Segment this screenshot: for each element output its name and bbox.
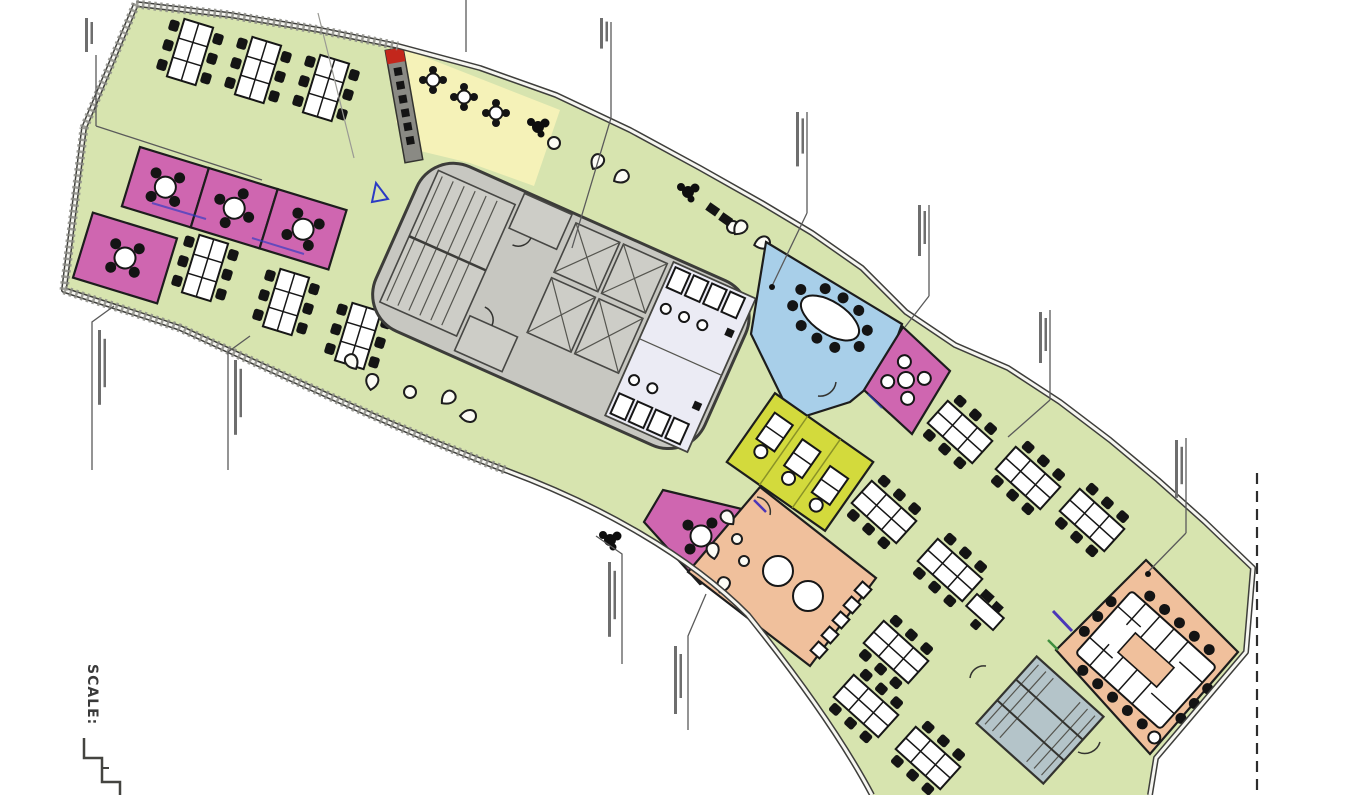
side-table [404,386,416,398]
callout-label [98,330,106,405]
scale-bar [84,738,120,795]
callout-label [608,562,616,637]
callout-label [1039,312,1047,363]
callout-dot [1145,571,1151,577]
callout-label [1175,440,1183,498]
callout-label [796,112,804,166]
callout-label [674,646,682,714]
callout-dot [769,284,775,290]
callout-label [600,18,608,49]
floor-plan-sheet: SCALE: [0,0,1350,795]
callout-label [85,18,93,52]
callout-label [918,205,926,256]
floor-plan-drawing: SCALE: [0,0,1350,795]
scale-label: SCALE: [84,664,100,725]
side-table [548,137,560,149]
callout-label [234,360,242,435]
